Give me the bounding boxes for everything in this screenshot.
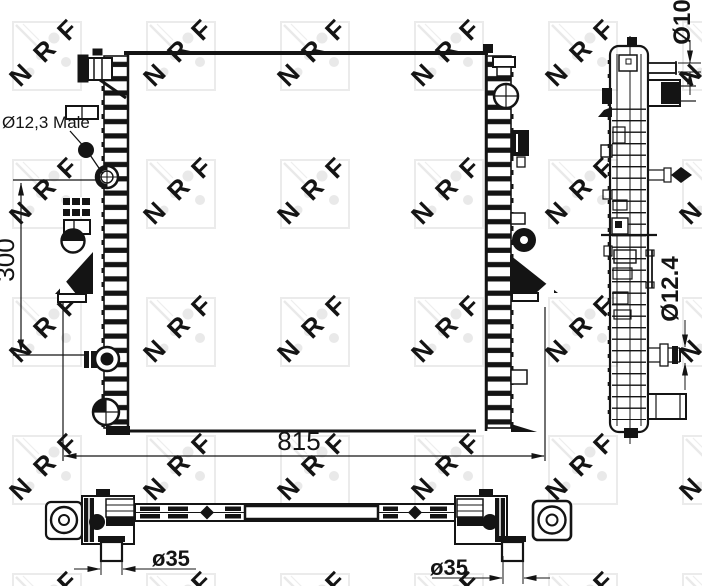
top-corner-tab	[483, 44, 493, 53]
left-knob	[62, 230, 85, 253]
right-black-box	[511, 130, 529, 156]
top-pipe	[648, 61, 676, 75]
left-tab	[602, 88, 612, 104]
bottom-crosshair-port	[92, 398, 120, 426]
bottom-left-mount	[46, 502, 82, 539]
top-inner-box	[619, 55, 637, 71]
right-knob	[512, 228, 536, 252]
bottom-right-mount	[533, 501, 571, 540]
radiator-technical-drawing: N R F	[0, 0, 702, 586]
left-pipe-dim-label: ø35	[152, 546, 190, 571]
height-dim-label: 300	[0, 238, 20, 281]
top-pipe-dim-label: Ø10	[669, 0, 696, 45]
right-bump	[517, 157, 525, 167]
bottom-left-pipe	[101, 542, 122, 561]
bottom-stub	[624, 428, 638, 438]
inlet-port-label: Ø12,3 Male	[2, 113, 90, 132]
right-crosshair-port	[493, 83, 519, 109]
width-dim-label: 815	[277, 426, 320, 456]
drain-dim-label: Ø12.4	[657, 256, 684, 322]
bar-center-section	[245, 506, 378, 519]
lower-outlet	[648, 394, 686, 419]
filler-cap	[627, 37, 637, 46]
right-top-fitting	[493, 57, 515, 76]
drawing-svg: N R F	[0, 0, 702, 586]
right-small-tab	[511, 213, 525, 224]
bottom-bar	[135, 504, 490, 521]
tank-bottom-tip	[106, 426, 130, 435]
right-lower-tab	[511, 370, 527, 384]
side-box-5	[612, 218, 628, 234]
bottom-right-pipe	[502, 542, 523, 561]
right-pipe-dim-label: ø35	[430, 555, 468, 580]
side-rungs	[612, 108, 646, 420]
